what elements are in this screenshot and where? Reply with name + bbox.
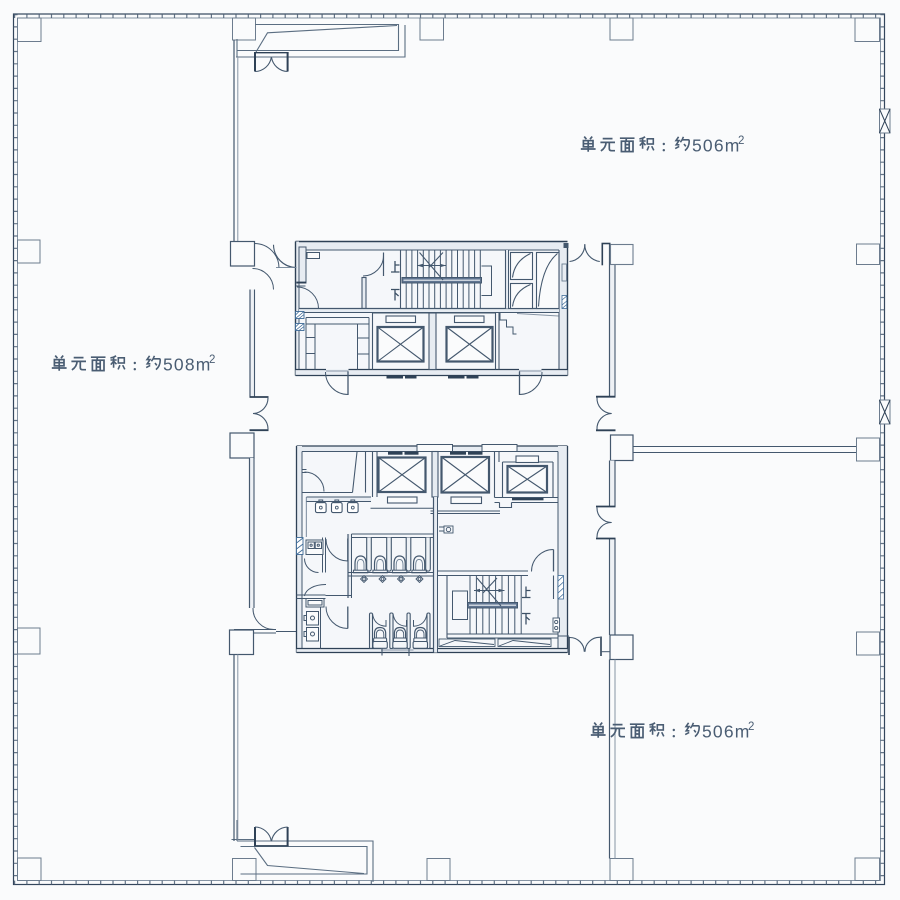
svg-text:2: 2 xyxy=(209,354,215,366)
svg-text:2: 2 xyxy=(748,721,754,733)
svg-text:506m: 506m xyxy=(702,721,751,741)
svg-text:2: 2 xyxy=(738,135,744,147)
svg-text:508m: 508m xyxy=(163,354,212,374)
svg-text:506m: 506m xyxy=(692,135,741,155)
